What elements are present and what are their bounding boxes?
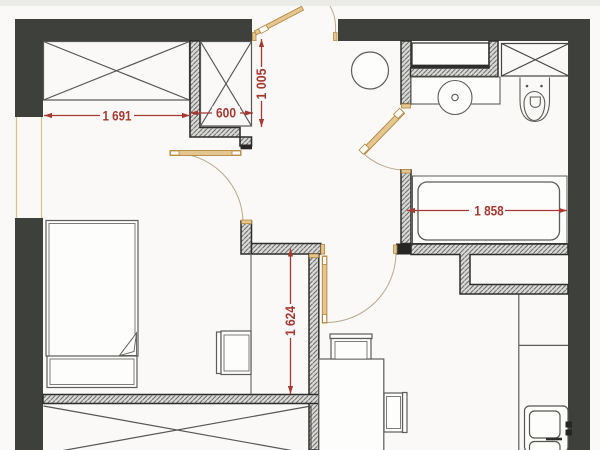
svg-text:1 691: 1 691	[103, 109, 132, 124]
svg-text:600: 600	[216, 106, 236, 121]
svg-text:1 858: 1 858	[474, 204, 504, 219]
svg-text:1 624: 1 624	[283, 306, 298, 336]
svg-text:1 005: 1 005	[254, 68, 269, 99]
